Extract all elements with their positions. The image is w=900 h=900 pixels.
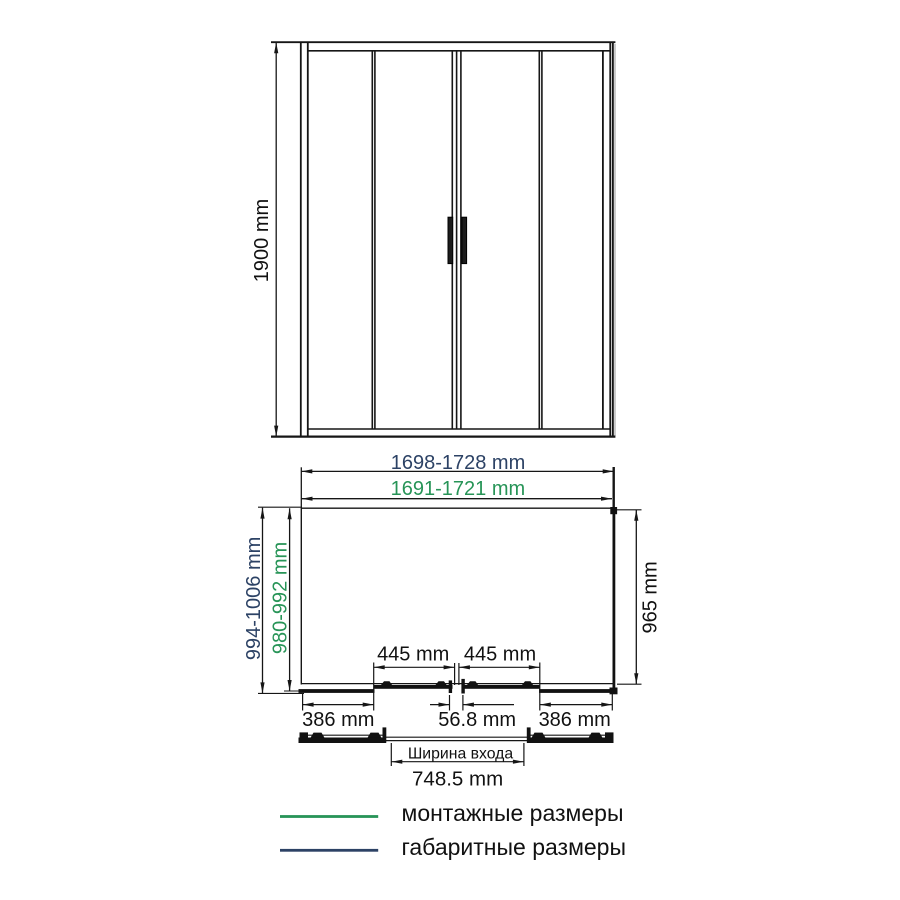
svg-text:Ширина входа: Ширина входа [408, 746, 514, 763]
svg-text:1691-1721 mm: 1691-1721 mm [391, 478, 526, 500]
svg-text:445 mm: 445 mm [377, 643, 449, 665]
svg-text:386 mm: 386 mm [539, 709, 611, 731]
svg-text:56.8 mm: 56.8 mm [438, 709, 516, 731]
svg-text:445 mm: 445 mm [464, 643, 536, 665]
svg-text:748.5 mm: 748.5 mm [412, 767, 503, 790]
svg-text:1698-1728 mm: 1698-1728 mm [391, 452, 526, 474]
svg-text:1900 mm: 1900 mm [251, 199, 273, 282]
svg-text:965 mm: 965 mm [639, 561, 661, 633]
svg-text:монтажные размеры: монтажные размеры [402, 800, 624, 826]
svg-text:габаритные размеры: габаритные размеры [402, 834, 627, 860]
svg-text:386 mm: 386 mm [302, 709, 374, 731]
svg-text:980-992 mm: 980-992 mm [270, 542, 292, 654]
svg-text:994-1006 mm: 994-1006 mm [243, 537, 265, 660]
